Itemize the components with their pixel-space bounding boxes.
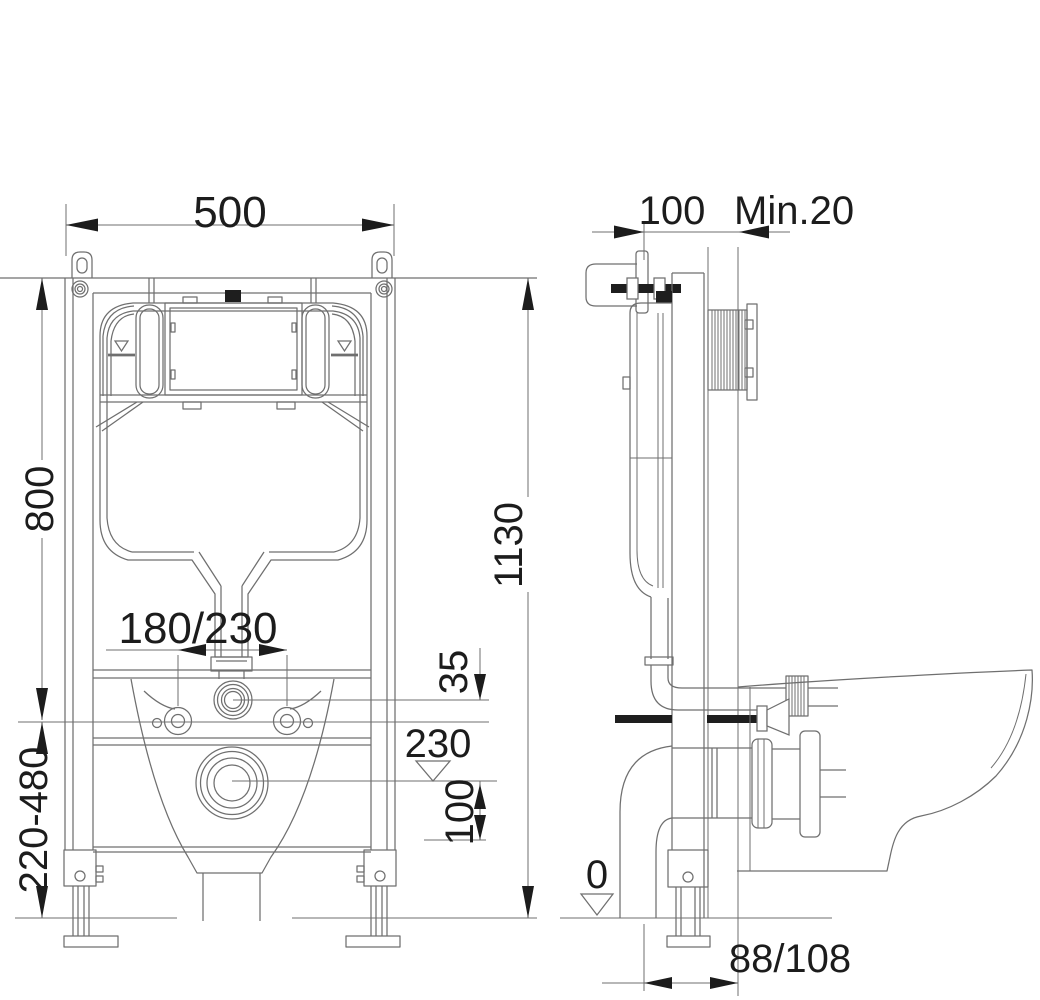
dim-floor-datum: 0 <box>586 853 608 897</box>
pan-front <box>131 679 334 921</box>
dim-outlet-offset: 100 <box>438 779 482 846</box>
technical-drawing: 500 800 220-480 1130 180/230 35 230 <box>0 0 1040 1000</box>
dim-frame-width: 500 <box>193 188 266 237</box>
fixing-rod <box>615 699 789 735</box>
side-view: 100 Min.20 0 88/108 <box>560 189 1032 996</box>
wall-bracket-side <box>586 251 681 313</box>
inlet-fitting <box>656 291 672 303</box>
water-level-icon <box>331 341 358 355</box>
dim-outlet-setback: 88/108 <box>729 937 851 981</box>
dim-wall-min: Min.20 <box>734 189 854 233</box>
front-view: 500 800 220-480 1130 180/230 35 230 <box>0 188 537 947</box>
inlet-block <box>225 290 241 302</box>
datum-triangle <box>416 761 450 781</box>
dim-flush-offset: 35 <box>432 650 476 695</box>
dim-frame-depth: 100 <box>639 189 706 233</box>
dim-fixing-centers: 180/230 <box>118 604 277 653</box>
access-bellows <box>708 304 757 400</box>
pan-side <box>737 670 1032 871</box>
dim-leg-adjust: 220-480 <box>12 747 56 894</box>
dim-cistern-height: 800 <box>18 466 62 533</box>
water-level-icon <box>108 341 135 355</box>
dim-outlet-height: 230 <box>405 722 472 766</box>
frame-legs-front <box>64 850 400 947</box>
dim-total-height: 1130 <box>487 502 531 588</box>
datum-triangle <box>581 894 613 915</box>
drawing-canvas: 500 800 220-480 1130 180/230 35 230 <box>0 0 1040 1000</box>
drain-assembly-side <box>620 731 846 918</box>
